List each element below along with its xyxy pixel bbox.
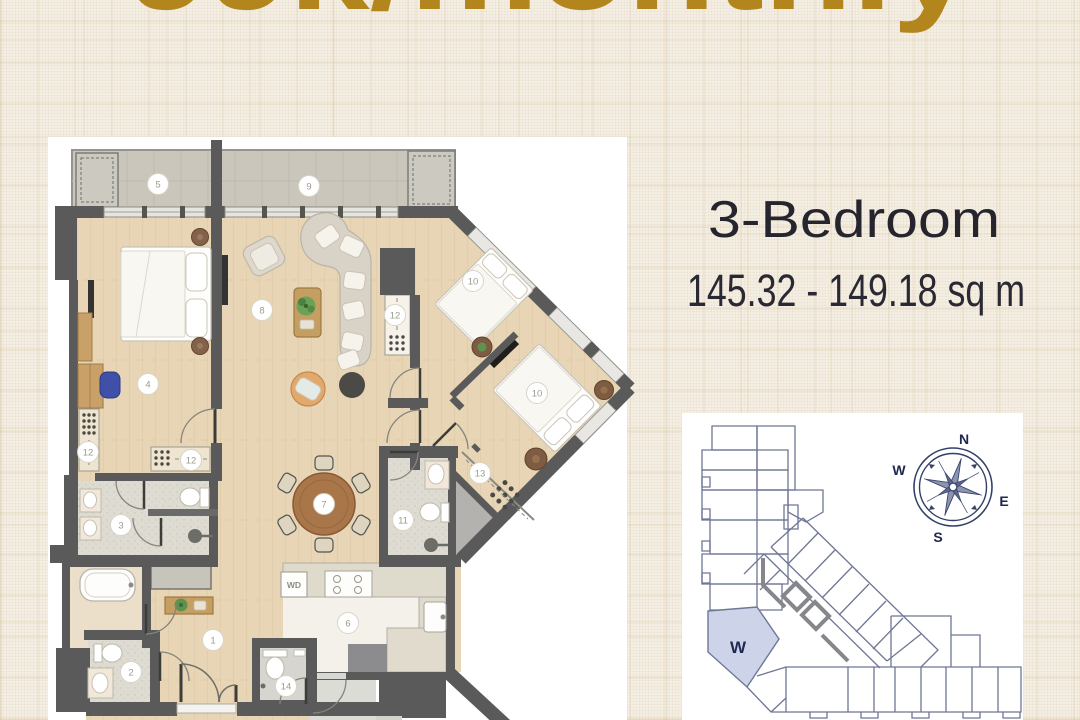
svg-text:12: 12 bbox=[186, 456, 197, 467]
svg-text:5: 5 bbox=[155, 180, 160, 191]
svg-text:3: 3 bbox=[118, 521, 123, 532]
svg-text:7: 7 bbox=[321, 500, 326, 511]
svg-text:14: 14 bbox=[281, 682, 292, 693]
svg-text:12: 12 bbox=[390, 311, 401, 322]
svg-text:2: 2 bbox=[128, 668, 133, 679]
svg-text:1: 1 bbox=[210, 636, 215, 647]
svg-text:W: W bbox=[730, 638, 747, 657]
svg-text:4: 4 bbox=[145, 380, 150, 391]
svg-text:WD: WD bbox=[287, 580, 301, 590]
svg-text:10: 10 bbox=[468, 277, 479, 288]
svg-text:99k/monthly: 99k/monthly bbox=[128, 0, 973, 34]
svg-text:S: S bbox=[933, 529, 942, 545]
svg-text:9: 9 bbox=[306, 182, 311, 193]
svg-text:11: 11 bbox=[398, 516, 408, 527]
svg-text:E: E bbox=[999, 493, 1008, 509]
svg-text:13: 13 bbox=[475, 469, 486, 480]
svg-text:145.32 - 149.18 sq m: 145.32 - 149.18 sq m bbox=[687, 265, 1025, 316]
svg-text:3-Bedroom: 3-Bedroom bbox=[708, 191, 1000, 249]
svg-text:W: W bbox=[892, 462, 906, 478]
svg-text:6: 6 bbox=[345, 619, 350, 630]
svg-text:12: 12 bbox=[83, 448, 94, 459]
svg-text:N: N bbox=[959, 431, 969, 447]
svg-text:10: 10 bbox=[532, 389, 543, 400]
svg-text:8: 8 bbox=[259, 306, 264, 317]
